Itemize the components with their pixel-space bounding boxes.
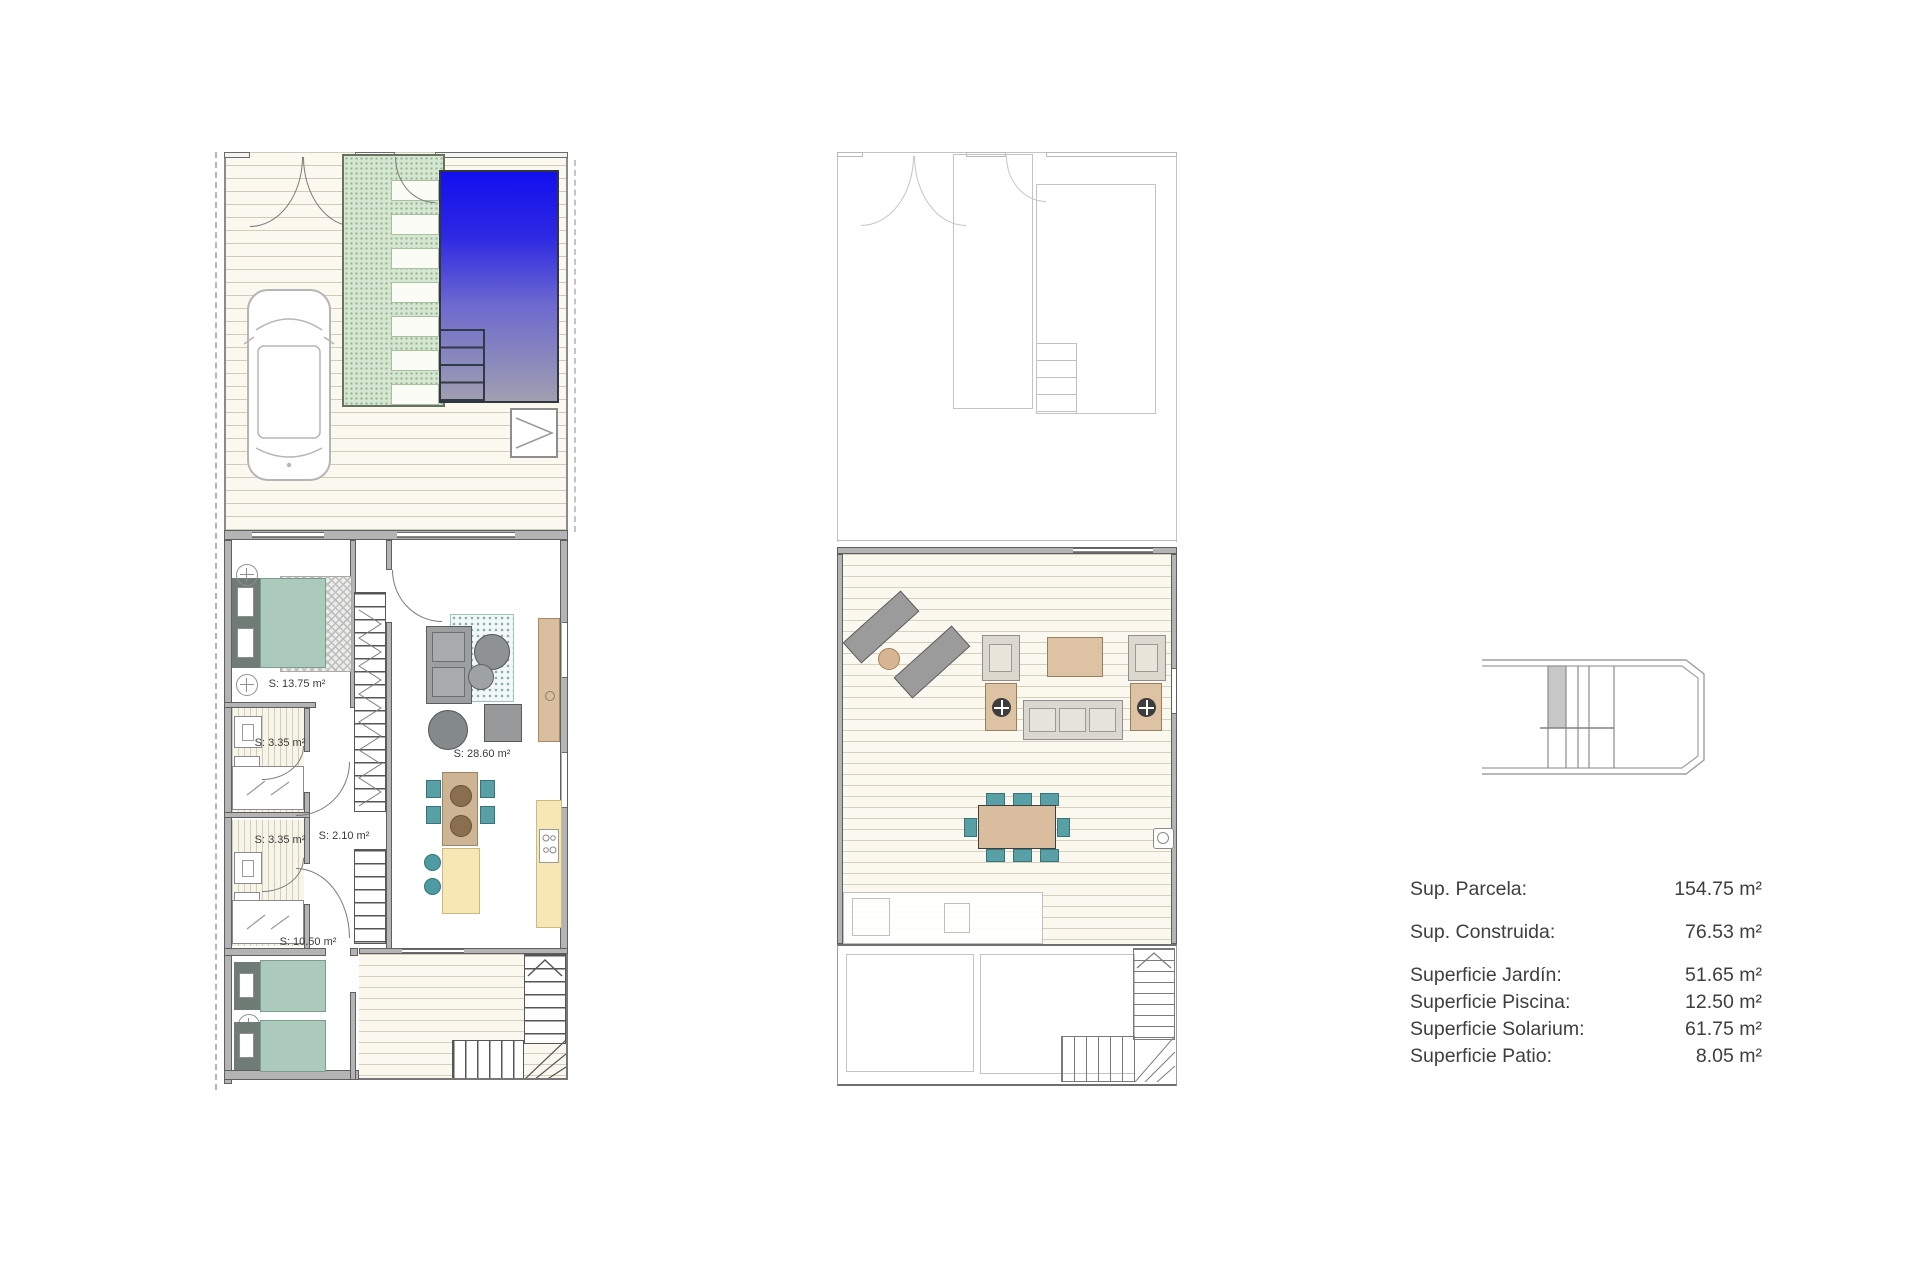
wall-living-left bbox=[386, 622, 392, 954]
single-bed bbox=[260, 1020, 326, 1072]
summary-value: 12.50 m² bbox=[1685, 991, 1762, 1014]
summary-row-parcela: Sup. Parcela: 154.75 m² bbox=[1410, 878, 1762, 901]
stepping-stone bbox=[391, 316, 439, 337]
round-table-small bbox=[468, 664, 494, 690]
stepping-stone bbox=[391, 384, 439, 405]
ghost-wall bbox=[1046, 152, 1177, 157]
summary-row-piscina: Superficie Piscina: 12.50 m² bbox=[1410, 991, 1762, 1014]
stepping-stone bbox=[391, 214, 439, 235]
outdoor-sofa bbox=[1023, 700, 1123, 740]
wall-bedroom2-top bbox=[224, 948, 326, 956]
parasol-base-icon bbox=[992, 698, 1011, 717]
stepping-stone bbox=[391, 350, 439, 371]
summary-row-patio: Superficie Patio: 8.05 m² bbox=[1410, 1045, 1762, 1068]
cooktop bbox=[539, 829, 559, 863]
solarium-wall-left bbox=[837, 554, 843, 944]
window bbox=[562, 622, 567, 678]
stair-winder-ghost bbox=[1135, 1036, 1175, 1082]
key-plan-highlighted-unit bbox=[1548, 666, 1566, 728]
summary-label: Superficie Jardín: bbox=[1410, 964, 1562, 987]
room-label-hallway: S: 2.10 m² bbox=[314, 830, 374, 842]
patio-edge bbox=[359, 1078, 568, 1080]
staircase-lower bbox=[354, 849, 386, 944]
garden-wall bbox=[224, 152, 250, 158]
drain bbox=[1153, 828, 1174, 849]
summary-row-solarium: Superficie Solarium: 61.75 m² bbox=[1410, 1018, 1762, 1041]
room-label-living-kitchen: S: 28.60 m² bbox=[434, 748, 530, 760]
ceiling-light-icon bbox=[236, 564, 258, 586]
stepping-stone bbox=[391, 248, 439, 269]
sliding-door bbox=[397, 532, 515, 538]
car bbox=[242, 280, 337, 490]
bed-headboard bbox=[232, 578, 260, 668]
side-table-round bbox=[878, 648, 900, 670]
outdoor-shower bbox=[510, 408, 558, 458]
summary-value: 51.65 m² bbox=[1685, 964, 1762, 987]
solarium-window bbox=[1172, 668, 1176, 714]
stepping-stone bbox=[391, 282, 439, 303]
counter-appliance bbox=[944, 903, 970, 933]
outdoor-dining-table bbox=[978, 805, 1056, 849]
stair-chevron bbox=[1133, 948, 1175, 972]
summary-label: Superficie Piscina: bbox=[1410, 991, 1570, 1014]
outdoor-chair bbox=[1040, 849, 1059, 862]
toilet bbox=[234, 852, 262, 884]
sliding-door bbox=[402, 949, 464, 953]
summary-label: Sup. Parcela: bbox=[1410, 878, 1527, 901]
coffee-table bbox=[1047, 637, 1103, 677]
armchair bbox=[982, 635, 1020, 681]
summary-value: 154.75 m² bbox=[1674, 878, 1762, 901]
summary-value: 61.75 m² bbox=[1685, 1018, 1762, 1041]
summary-value: 76.53 m² bbox=[1685, 921, 1762, 944]
patio-stair-lower bbox=[452, 1040, 524, 1080]
property-boundary-right bbox=[574, 160, 576, 532]
kitchen-tall-cabinet bbox=[538, 618, 560, 742]
summary-label: Sup. Construida: bbox=[1410, 921, 1555, 944]
outdoor-chair bbox=[986, 849, 1005, 862]
stair-chevron bbox=[524, 954, 566, 980]
dining-chair bbox=[426, 806, 441, 824]
key-plan bbox=[1482, 642, 1732, 792]
summary-label: Superficie Patio: bbox=[1410, 1045, 1552, 1068]
square-table bbox=[484, 704, 522, 742]
swimming-pool bbox=[439, 170, 559, 403]
ghost-pool bbox=[1036, 184, 1156, 414]
outdoor-kitchen-counter bbox=[843, 892, 1043, 944]
pool-steps bbox=[441, 329, 485, 401]
wall-bedroom2-right bbox=[350, 992, 356, 1080]
staircase-zigzag bbox=[354, 592, 386, 812]
ghost-wall bbox=[837, 152, 863, 157]
side-table-parasol bbox=[1130, 683, 1162, 731]
wall-post bbox=[350, 948, 358, 956]
dining-chair bbox=[480, 780, 495, 798]
solarium-plan bbox=[833, 152, 1181, 1090]
outdoor-chair bbox=[1013, 849, 1032, 862]
bed-headboard bbox=[234, 1022, 260, 1070]
round-pouf bbox=[428, 710, 468, 750]
single-bed bbox=[260, 960, 326, 1012]
stair-ghost-lower bbox=[1061, 1036, 1135, 1082]
summary-value: 8.05 m² bbox=[1696, 1045, 1762, 1068]
double-bed bbox=[260, 578, 326, 668]
parasol-base-icon bbox=[1137, 698, 1156, 717]
dining-table bbox=[442, 772, 478, 846]
floor-plan-sheet: S: 13.75 m² S: 3.35 m² S: 3.35 m² S: 2.1… bbox=[0, 0, 1920, 1280]
ghost-slab-line bbox=[837, 540, 1177, 541]
wall-living-left bbox=[386, 540, 392, 570]
summary-row-jardin: Superficie Jardín: 51.65 m² bbox=[1410, 964, 1762, 987]
ground-floor-plan: S: 13.75 m² S: 3.35 m² S: 3.35 m² S: 2.1… bbox=[222, 152, 570, 1090]
solarium-wall-right bbox=[1171, 554, 1177, 944]
summary-label: Superficie Solarium: bbox=[1410, 1018, 1585, 1041]
armchair bbox=[1128, 635, 1166, 681]
stool bbox=[424, 878, 441, 895]
dining-chair bbox=[480, 806, 495, 824]
solarium-opening bbox=[1073, 548, 1153, 553]
sofa bbox=[426, 626, 472, 704]
counter-sink bbox=[852, 898, 890, 936]
side-table-parasol bbox=[985, 683, 1017, 731]
summary-row-construida: Sup. Construida: 76.53 m² bbox=[1410, 921, 1762, 944]
area-summary: Sup. Parcela: 154.75 m² Sup. Construida:… bbox=[1410, 872, 1762, 1082]
patio-edge bbox=[566, 954, 568, 1080]
room-label-master-bedroom: S: 13.75 m² bbox=[252, 678, 342, 690]
bed-headboard bbox=[234, 962, 260, 1010]
stool bbox=[424, 854, 441, 871]
ghost-room bbox=[846, 954, 974, 1072]
stair-winder bbox=[524, 1040, 566, 1080]
room-label-bedroom-2: S: 10.50 m² bbox=[270, 936, 346, 948]
outdoor-chair bbox=[964, 818, 977, 837]
ghost-pool-steps bbox=[1037, 343, 1077, 413]
room-label-bathroom-2: S: 3.35 m² bbox=[248, 834, 312, 846]
outdoor-chair bbox=[1057, 818, 1070, 837]
window bbox=[252, 532, 324, 538]
window bbox=[562, 752, 567, 808]
kitchen-counter bbox=[536, 800, 562, 928]
property-boundary-left bbox=[215, 152, 217, 1090]
garden-wall bbox=[435, 152, 568, 158]
dining-chair bbox=[426, 780, 441, 798]
ghost-garden-path bbox=[953, 154, 1033, 409]
kitchen-island bbox=[442, 848, 480, 914]
